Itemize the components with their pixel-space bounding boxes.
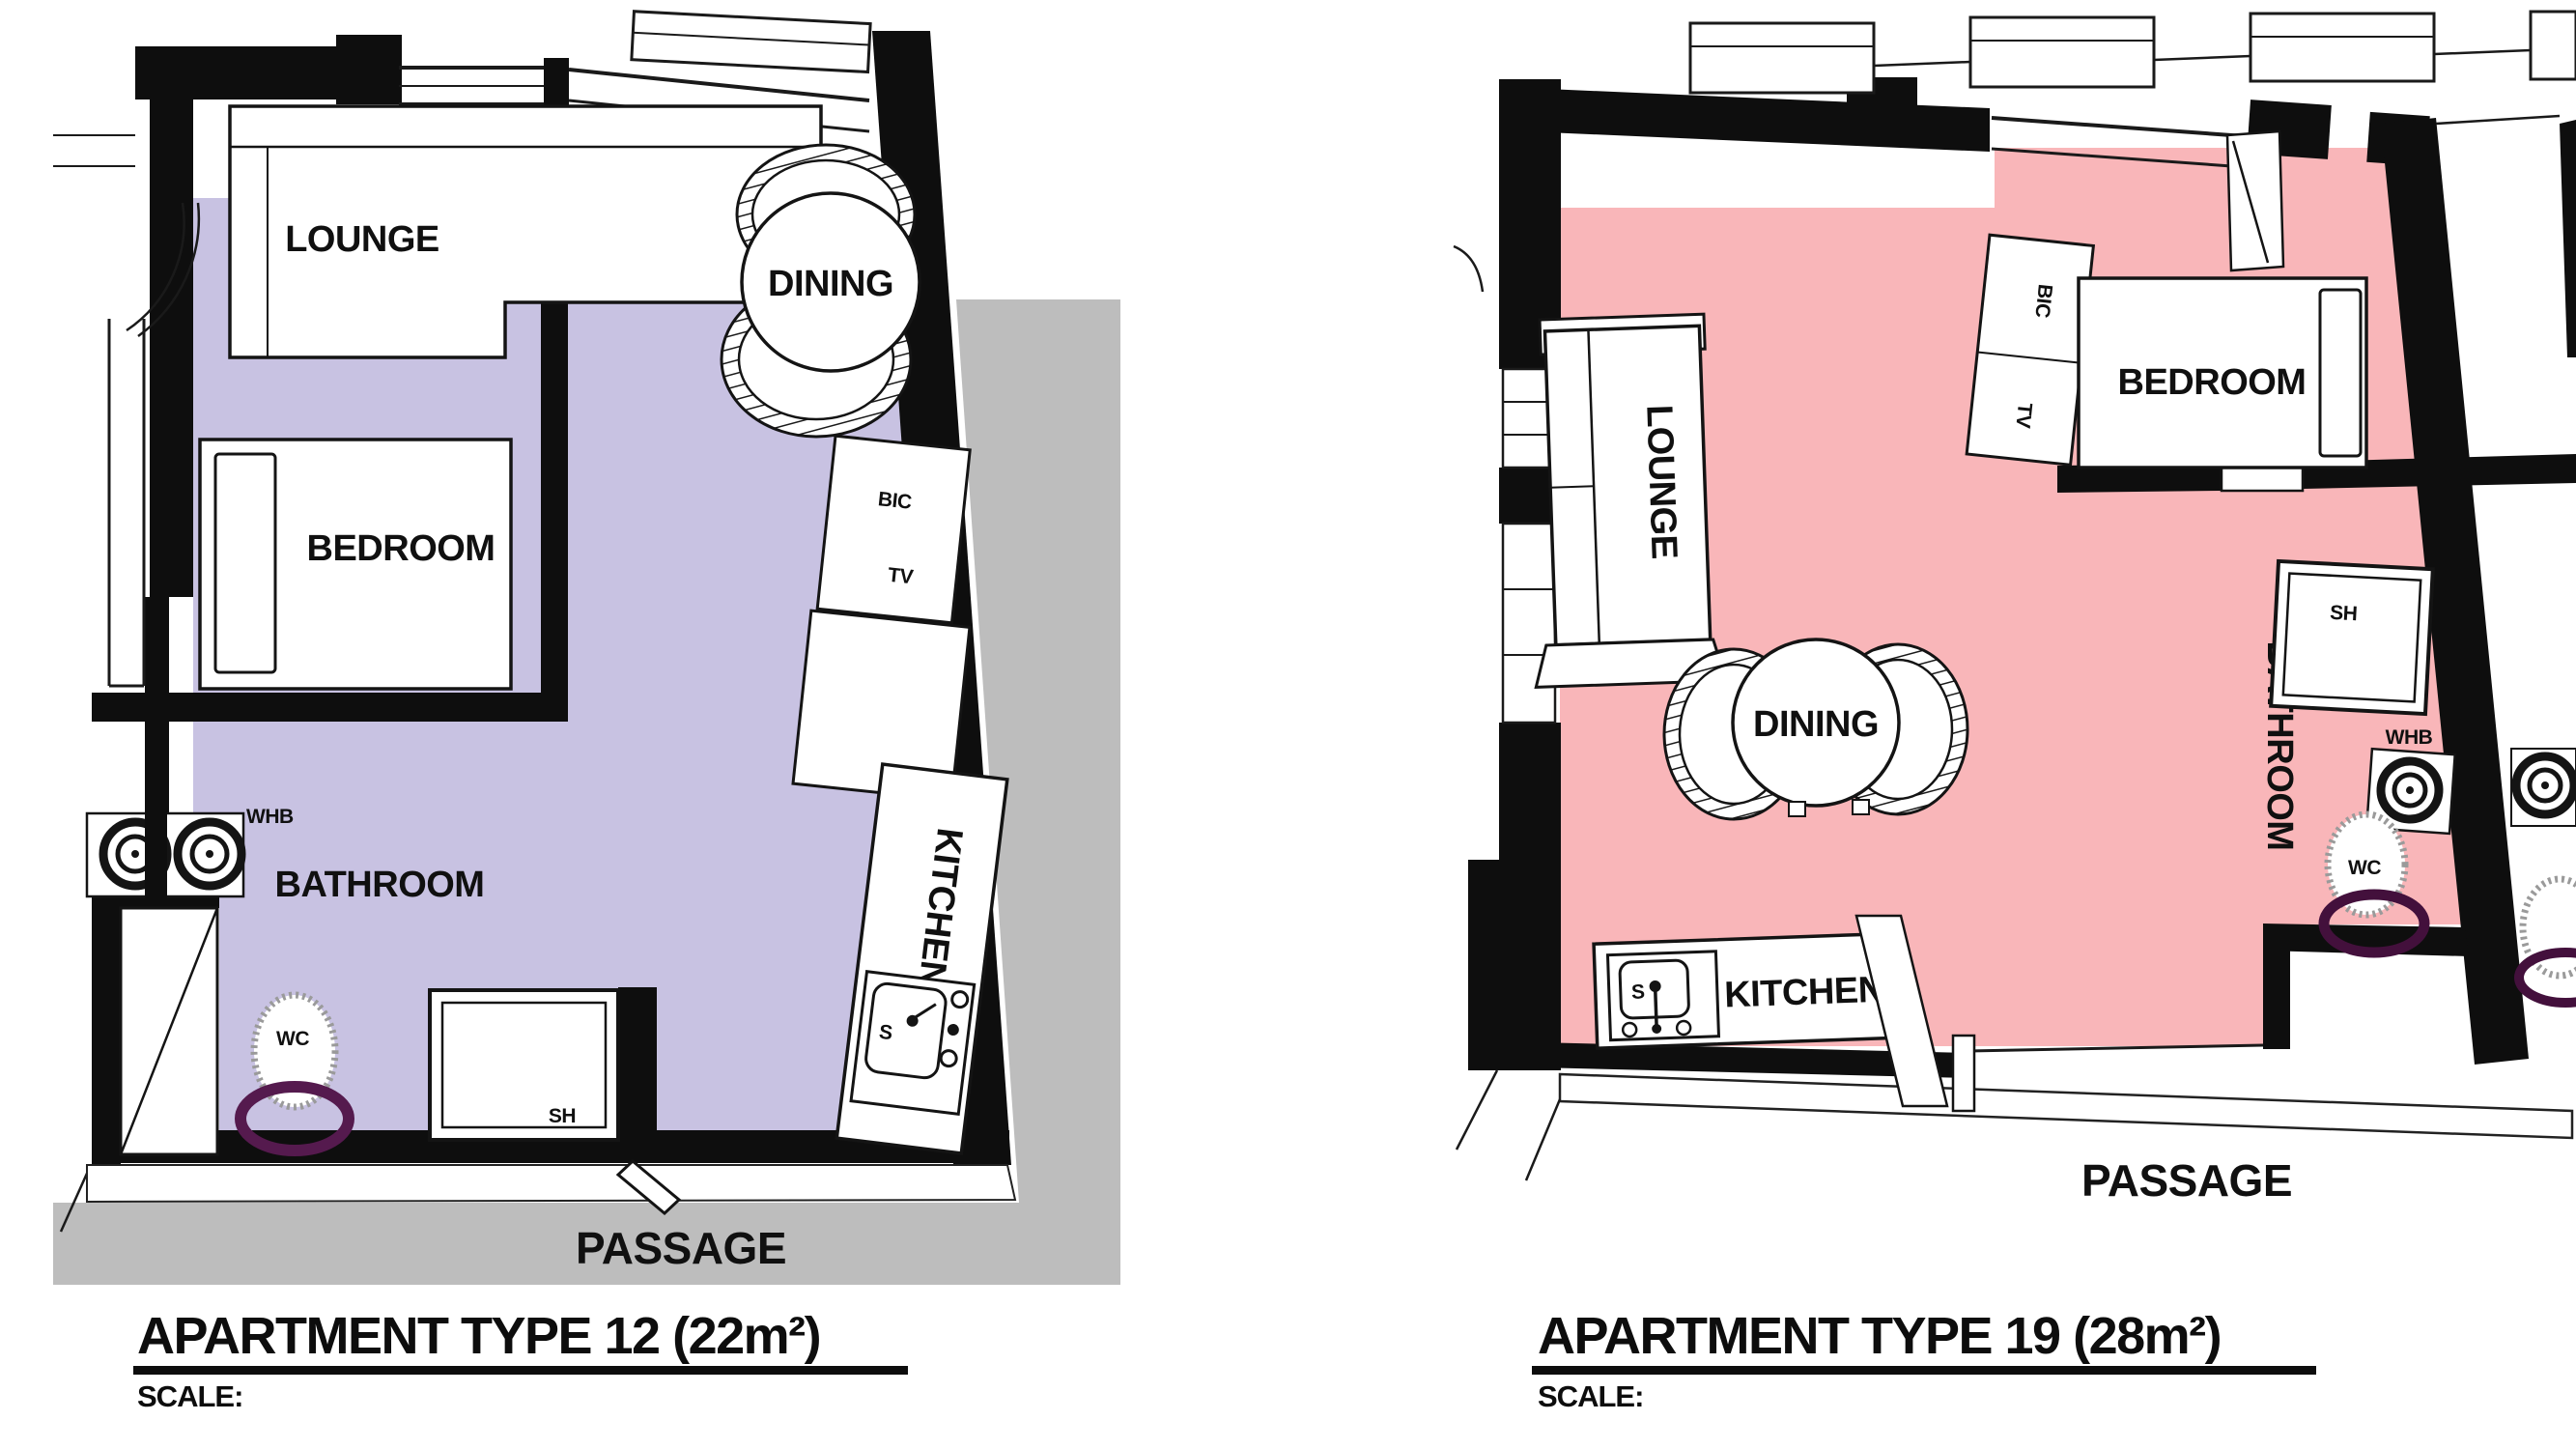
tv-label: TV bbox=[887, 564, 915, 589]
kitchen-counter: S KITCHEN bbox=[1594, 933, 1897, 1048]
sh-label: SH bbox=[2330, 602, 2358, 625]
bed: BEDROOM bbox=[2079, 278, 2366, 468]
bedroom-label: BEDROOM bbox=[307, 528, 495, 569]
lounge-label: LOUNGE bbox=[1638, 404, 1684, 559]
entry-door-jamb bbox=[1953, 1036, 1974, 1111]
whb-label: WHB bbox=[2386, 726, 2433, 749]
dining-label: DINING bbox=[1753, 704, 1879, 745]
floor-plan-type-12: LOUNGE DINING BIC TV KITCHEN S bbox=[53, 10, 1125, 1294]
wc-label: WC bbox=[2348, 857, 2381, 879]
shower: SH bbox=[2271, 561, 2433, 714]
bic-label: BIC bbox=[877, 488, 913, 514]
floor-plan-type-19: LOUNGE DINING BIC TV BEDROOM bbox=[1449, 10, 2576, 1294]
sink-label: S bbox=[1631, 980, 1646, 1003]
neighbor-fixtures bbox=[2511, 749, 2576, 1003]
whb-label: WHB bbox=[246, 806, 294, 828]
bic-tv-cabinet: BIC TV bbox=[1967, 235, 2093, 465]
bic-tv-cabinet: BIC TV bbox=[817, 436, 970, 623]
dining-set: DINING bbox=[1664, 639, 1967, 819]
bathroom-label: BATHROOM bbox=[275, 865, 485, 905]
tv-label: TV bbox=[2011, 402, 2036, 430]
wc-label: WC bbox=[276, 1028, 309, 1050]
threshold-strip bbox=[87, 1165, 1015, 1202]
passage-label: PASSAGE bbox=[576, 1223, 786, 1273]
bed: BEDROOM bbox=[200, 440, 511, 689]
title-underline-right bbox=[1532, 1366, 2316, 1375]
kitchen-label: KITCHEN bbox=[1724, 970, 1885, 1016]
bedroom-label: BEDROOM bbox=[2118, 362, 2307, 403]
dining-label: DINING bbox=[768, 264, 893, 304]
title-underline-left bbox=[133, 1366, 908, 1375]
bic-label: BIC bbox=[2030, 283, 2056, 319]
lounge-sofa: LOUNGE bbox=[1523, 314, 1726, 688]
sh-label: SH bbox=[549, 1105, 576, 1127]
title-type-12: APARTMENT TYPE 12 (22m²) bbox=[137, 1306, 820, 1366]
passage-label: PASSAGE bbox=[2081, 1155, 2292, 1206]
page: LOUNGE DINING BIC TV KITCHEN S bbox=[0, 0, 2576, 1449]
scale-label-right: SCALE: bbox=[1538, 1379, 1643, 1414]
shower: SH bbox=[430, 990, 618, 1140]
threshold-strip bbox=[1560, 1074, 2572, 1138]
title-type-19: APARTMENT TYPE 19 (28m²) bbox=[1538, 1306, 2221, 1366]
scale-label-left: SCALE: bbox=[137, 1379, 242, 1414]
dining-set: DINING bbox=[722, 145, 920, 437]
lounge-label: LOUNGE bbox=[285, 219, 439, 260]
